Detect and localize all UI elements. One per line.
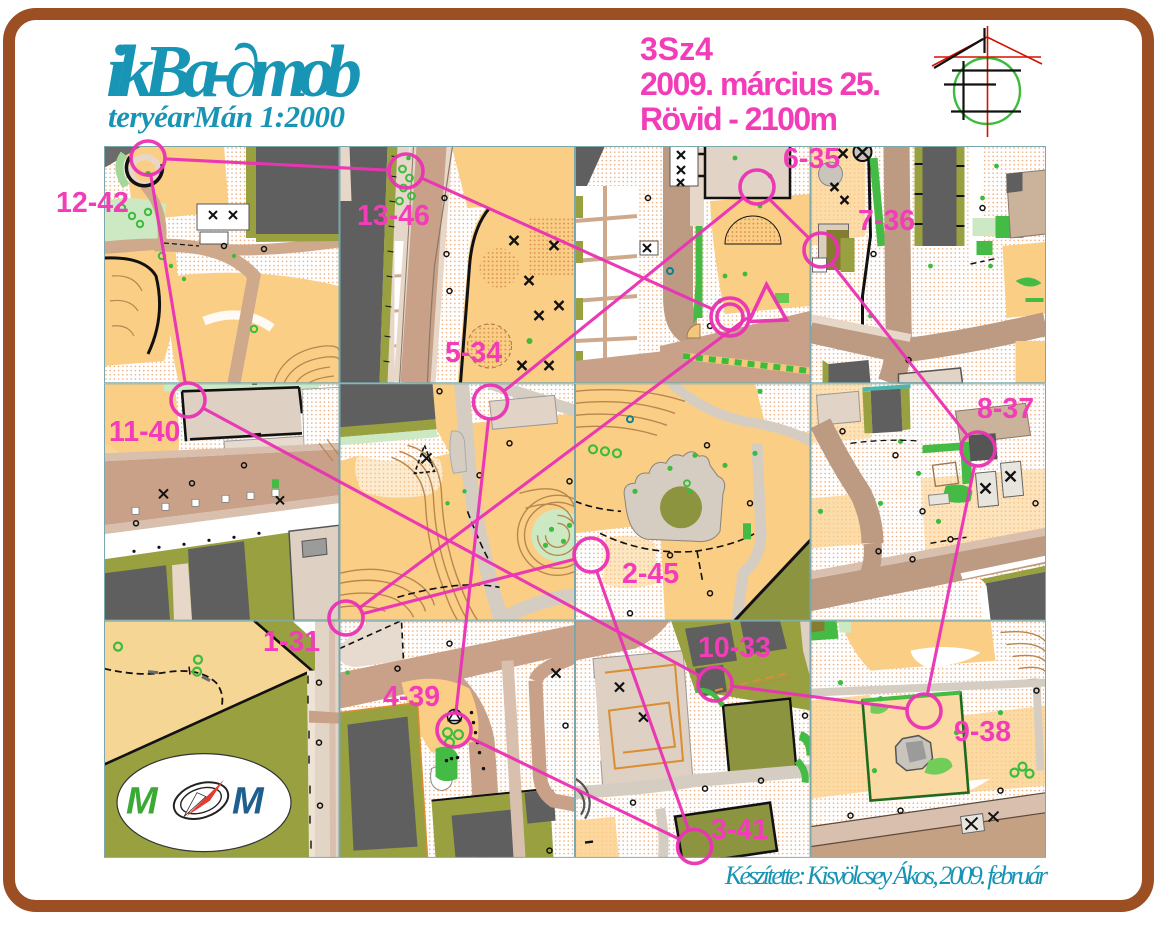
svg-text:4-39: 4-39 <box>383 681 440 713</box>
svg-text:5-34: 5-34 <box>445 337 502 369</box>
svg-text:6-35: 6-35 <box>783 143 840 175</box>
svg-text:Rövid - 2100m: Rövid - 2100m <box>640 101 838 137</box>
svg-text:teryéarMán 1:2000: teryéarMán 1:2000 <box>108 99 345 134</box>
svg-text:13-46: 13-46 <box>357 200 430 232</box>
svg-text:3Sz4: 3Sz4 <box>640 31 713 67</box>
svg-text:M: M <box>232 781 265 823</box>
svg-text:12-42: 12-42 <box>56 187 129 219</box>
svg-text:2-45: 2-45 <box>622 558 679 590</box>
svg-text:2009. március 25.: 2009. március 25. <box>640 66 881 102</box>
svg-text:M: M <box>126 781 159 823</box>
svg-text:7-36: 7-36 <box>858 205 915 237</box>
svg-text:11-40: 11-40 <box>109 416 180 448</box>
svg-text:10-33: 10-33 <box>698 632 771 664</box>
svg-text:8-37: 8-37 <box>977 393 1034 425</box>
svg-text:9-38: 9-38 <box>954 716 1011 748</box>
svg-text:3-41: 3-41 <box>711 814 768 846</box>
svg-text:Készítette: Kisvölcsey Ákos, 2: Készítette: Kisvölcsey Ákos, 2009. febru… <box>724 861 1049 890</box>
svg-text:1-31: 1-31 <box>263 626 320 658</box>
